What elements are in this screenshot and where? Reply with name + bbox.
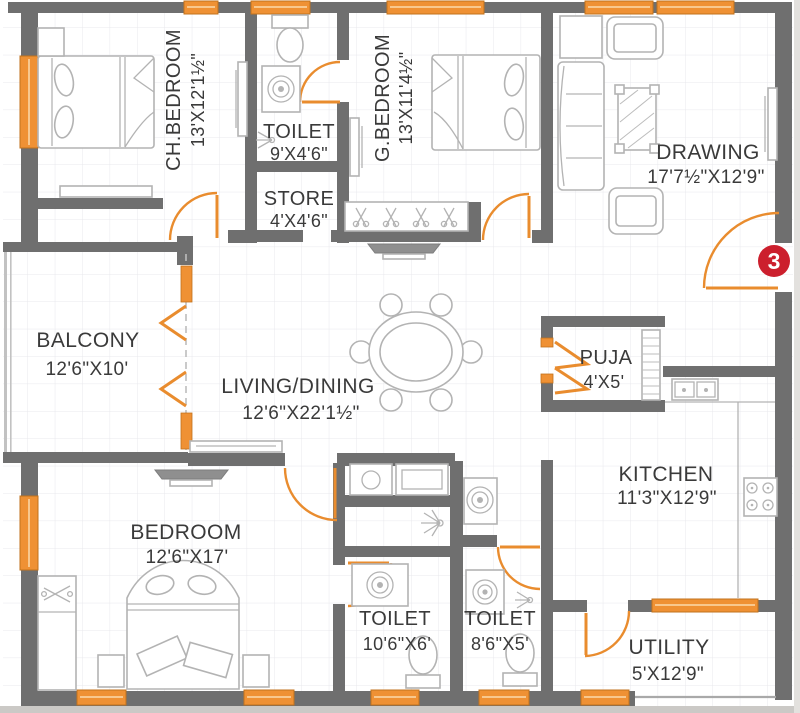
room-label-ch-bedroom: CH.BEDROOM <box>163 29 185 171</box>
room-dims-drawing: 17'7½"X12'9" <box>647 167 764 188</box>
room-dims-toilet-top: 9'X4'6" <box>270 144 328 164</box>
floor-plan-canvas: CH.BEDROOM 13'X12'1½" TOILET 9'X4'6" STO… <box>0 0 800 713</box>
window <box>479 690 529 705</box>
geyser-icon-passage <box>464 478 497 524</box>
tv-unit-ch-bedroom <box>236 62 247 136</box>
window <box>244 690 294 705</box>
window <box>251 1 310 14</box>
side-table-ch-bedroom <box>38 28 64 56</box>
side-table-bedroom-right <box>243 655 269 687</box>
window <box>657 1 734 14</box>
room-label-toilet-left: TOILET <box>359 608 431 630</box>
room-dims-utility: 5'X12'9" <box>632 664 704 685</box>
sofa-single-top-drawing <box>607 17 663 59</box>
room-dims-puja: 4'X5' <box>584 372 625 392</box>
unit-number-badge: 3 <box>758 245 790 277</box>
geyser-icon-toilet-top <box>262 66 300 112</box>
window <box>184 1 218 14</box>
room-label-g-bedroom: G.BEDROOM <box>372 34 394 162</box>
unit-number-text: 3 <box>768 248 781 274</box>
shoe-rack-g-bedroom <box>345 202 468 231</box>
window <box>371 690 419 705</box>
room-dims-g-bedroom: 13'X11'4½" <box>396 52 416 145</box>
geyser-icon-toilet-left <box>352 564 408 606</box>
window <box>20 56 38 148</box>
coffee-table-drawing <box>615 85 659 153</box>
corner-table-drawing <box>560 16 602 58</box>
room-dims-living-dining: 12'6"X22'1½" <box>242 403 359 424</box>
room-dims-store: 4'X4'6" <box>270 211 328 231</box>
room-label-balcony: BALCONY <box>36 329 139 352</box>
room-label-store: STORE <box>264 188 335 210</box>
room-label-living-dining: LIVING/DINING <box>221 375 374 398</box>
room-dims-toilet-right: 8'6"X5' <box>471 634 529 654</box>
window <box>581 690 629 705</box>
room-label-utility: UTILITY <box>629 636 710 659</box>
room-label-toilet-top: TOILET <box>263 121 335 143</box>
kitchen-sink-icon <box>672 379 718 400</box>
gas-stove-icon <box>744 478 777 516</box>
window <box>20 496 38 570</box>
tv-unit-living-bottom <box>190 441 282 452</box>
room-label-kitchen: KITCHEN <box>619 463 714 486</box>
room-dims-kitchen: 11'3"X12'9" <box>617 488 717 509</box>
room-dims-balcony: 12'6"X10' <box>45 359 128 380</box>
room-label-puja: PUJA <box>580 347 633 369</box>
mandir-shelf-puja <box>642 330 660 400</box>
window <box>652 599 758 612</box>
window <box>585 1 653 14</box>
room-dims-toilet-left: 10'6"X6' <box>363 634 432 654</box>
room-label-bedroom: BEDROOM <box>130 521 241 544</box>
room-label-drawing: DRAWING <box>656 141 760 164</box>
bed-icon-bedroom <box>127 561 239 690</box>
window <box>77 690 126 705</box>
wardrobe-bedroom <box>38 576 76 690</box>
sofa-main-drawing <box>558 62 604 190</box>
room-label-toilet-right: TOILET <box>464 608 536 630</box>
appliance-box <box>396 464 448 495</box>
floor-plan-page: CH.BEDROOM 13'X12'1½" TOILET 9'X4'6" STO… <box>0 0 800 713</box>
bed-icon-ch-bedroom <box>38 56 154 148</box>
washing-machine-icon <box>350 464 392 495</box>
sofa-single-bottom-drawing <box>609 188 663 234</box>
bed-icon-g-bedroom <box>432 55 540 150</box>
room-dims-bedroom: 12'6"X17' <box>145 547 228 568</box>
dresser-ch-bedroom <box>60 186 152 197</box>
side-table-bedroom-left <box>98 655 124 687</box>
window <box>387 1 484 14</box>
room-dims-ch-bedroom: 13'X12'1½" <box>188 53 208 147</box>
